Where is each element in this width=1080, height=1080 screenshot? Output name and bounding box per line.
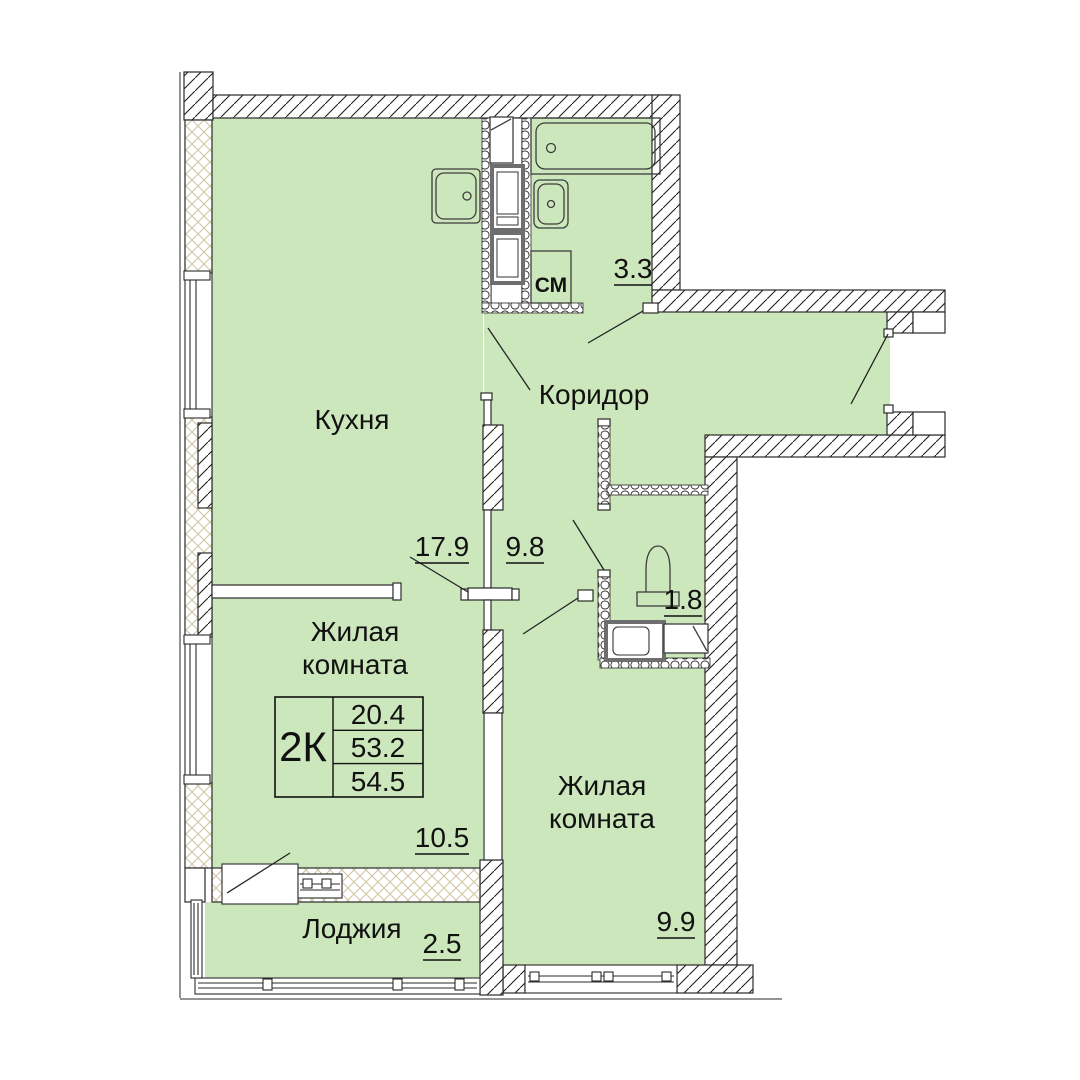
corridor-extension-fill (656, 312, 890, 435)
loggia-glazing-left (191, 900, 202, 978)
corridor-label: Коридор (539, 379, 650, 410)
wc-area: 1.8 (664, 584, 703, 615)
corridor-area: 9.8 (506, 531, 545, 562)
wc-door-stop-upper (598, 504, 610, 510)
floor-plan-drawing: Кухня 17.9 Коридор 9.8 3.3 1.8 Жилая ком… (0, 0, 1080, 1080)
partition-pilaster-upper (483, 425, 503, 510)
partition-living-wall (484, 713, 502, 860)
entrance-door-stop-top (884, 329, 893, 337)
living2-window (525, 965, 677, 993)
loggia-area: 2.5 (423, 928, 462, 959)
partition-thin-mid (484, 510, 491, 588)
wc-wall-left-upper (598, 426, 610, 510)
wall-corner-top-left (184, 72, 213, 120)
wall-left-band-2-hatch-a (198, 423, 212, 508)
wall-kitchen-living1 (212, 585, 397, 598)
living2-label-line1: Жилая (558, 770, 647, 801)
partition-thin-upper (484, 400, 491, 425)
living1-label-line2: комната (302, 649, 408, 680)
partition-top-cap (481, 393, 492, 400)
entrance-door-stop-bottom (884, 405, 893, 413)
living1-label-line1: Жилая (311, 616, 400, 647)
wall-post-loggia-right (480, 860, 503, 995)
living1-area: 10.5 (415, 822, 470, 853)
living2-area: 9.9 (657, 906, 696, 937)
entrance-sill-top (913, 312, 945, 333)
unit-total-area: 54.5 (351, 766, 406, 797)
unit-living-area: 20.4 (351, 699, 406, 730)
balcony-door (222, 864, 298, 904)
kitchen-window (184, 271, 212, 418)
wall-left-band-2-hatch-b (198, 553, 212, 637)
floor-plan-page: Кухня 17.9 Коридор 9.8 3.3 1.8 Жилая ком… (0, 0, 1080, 1080)
wall-post-bottom-window (503, 965, 525, 993)
wc-wall-top-cap (598, 419, 610, 426)
partition-t-cap-right (512, 589, 519, 600)
unit-area: 53.2 (351, 732, 406, 763)
wall-kitchen-living1-endcap (393, 583, 401, 600)
kitchen-living1-fill (212, 118, 483, 868)
unit-type: 2К (279, 723, 327, 770)
bathroom-wall-bottom (482, 303, 583, 313)
living2-label-line2: комната (549, 803, 655, 834)
washing-machine-label: СМ (535, 274, 567, 297)
living1-window (184, 635, 212, 784)
wall-top (213, 95, 672, 118)
loggia-label: Лоджия (302, 913, 401, 944)
wall-right-upper (652, 95, 680, 290)
kitchen-label: Кухня (315, 404, 390, 435)
wc-vanity-sink (606, 622, 664, 660)
wc-wall-top (607, 485, 708, 495)
living2-door-jamb (578, 590, 593, 601)
bathroom-area: 3.3 (614, 253, 653, 284)
wall-extension-bottom (705, 435, 945, 457)
wall-corner-bottom-right (677, 965, 753, 993)
wc-door-stop-lower (598, 570, 610, 577)
partition-thin-lower (484, 600, 491, 630)
bathroom-door-jamb (643, 303, 658, 313)
wc-heater-box (664, 624, 708, 653)
kitchen-area: 17.9 (415, 531, 470, 562)
loggia-glazing-bottom (195, 978, 480, 994)
partition-t-crossbar (468, 588, 512, 600)
wall-extension-top (652, 290, 945, 312)
wall-right-main (705, 457, 737, 965)
wall-left-loggia-stub (185, 868, 205, 902)
room-fills (205, 118, 890, 978)
wall-left-band-1 (185, 120, 212, 273)
entrance-sill-bottom (913, 412, 945, 435)
wall-left-band-3 (185, 783, 212, 868)
partition-pilaster-lower (483, 630, 503, 713)
entrance-jamb-bottom (887, 412, 913, 435)
